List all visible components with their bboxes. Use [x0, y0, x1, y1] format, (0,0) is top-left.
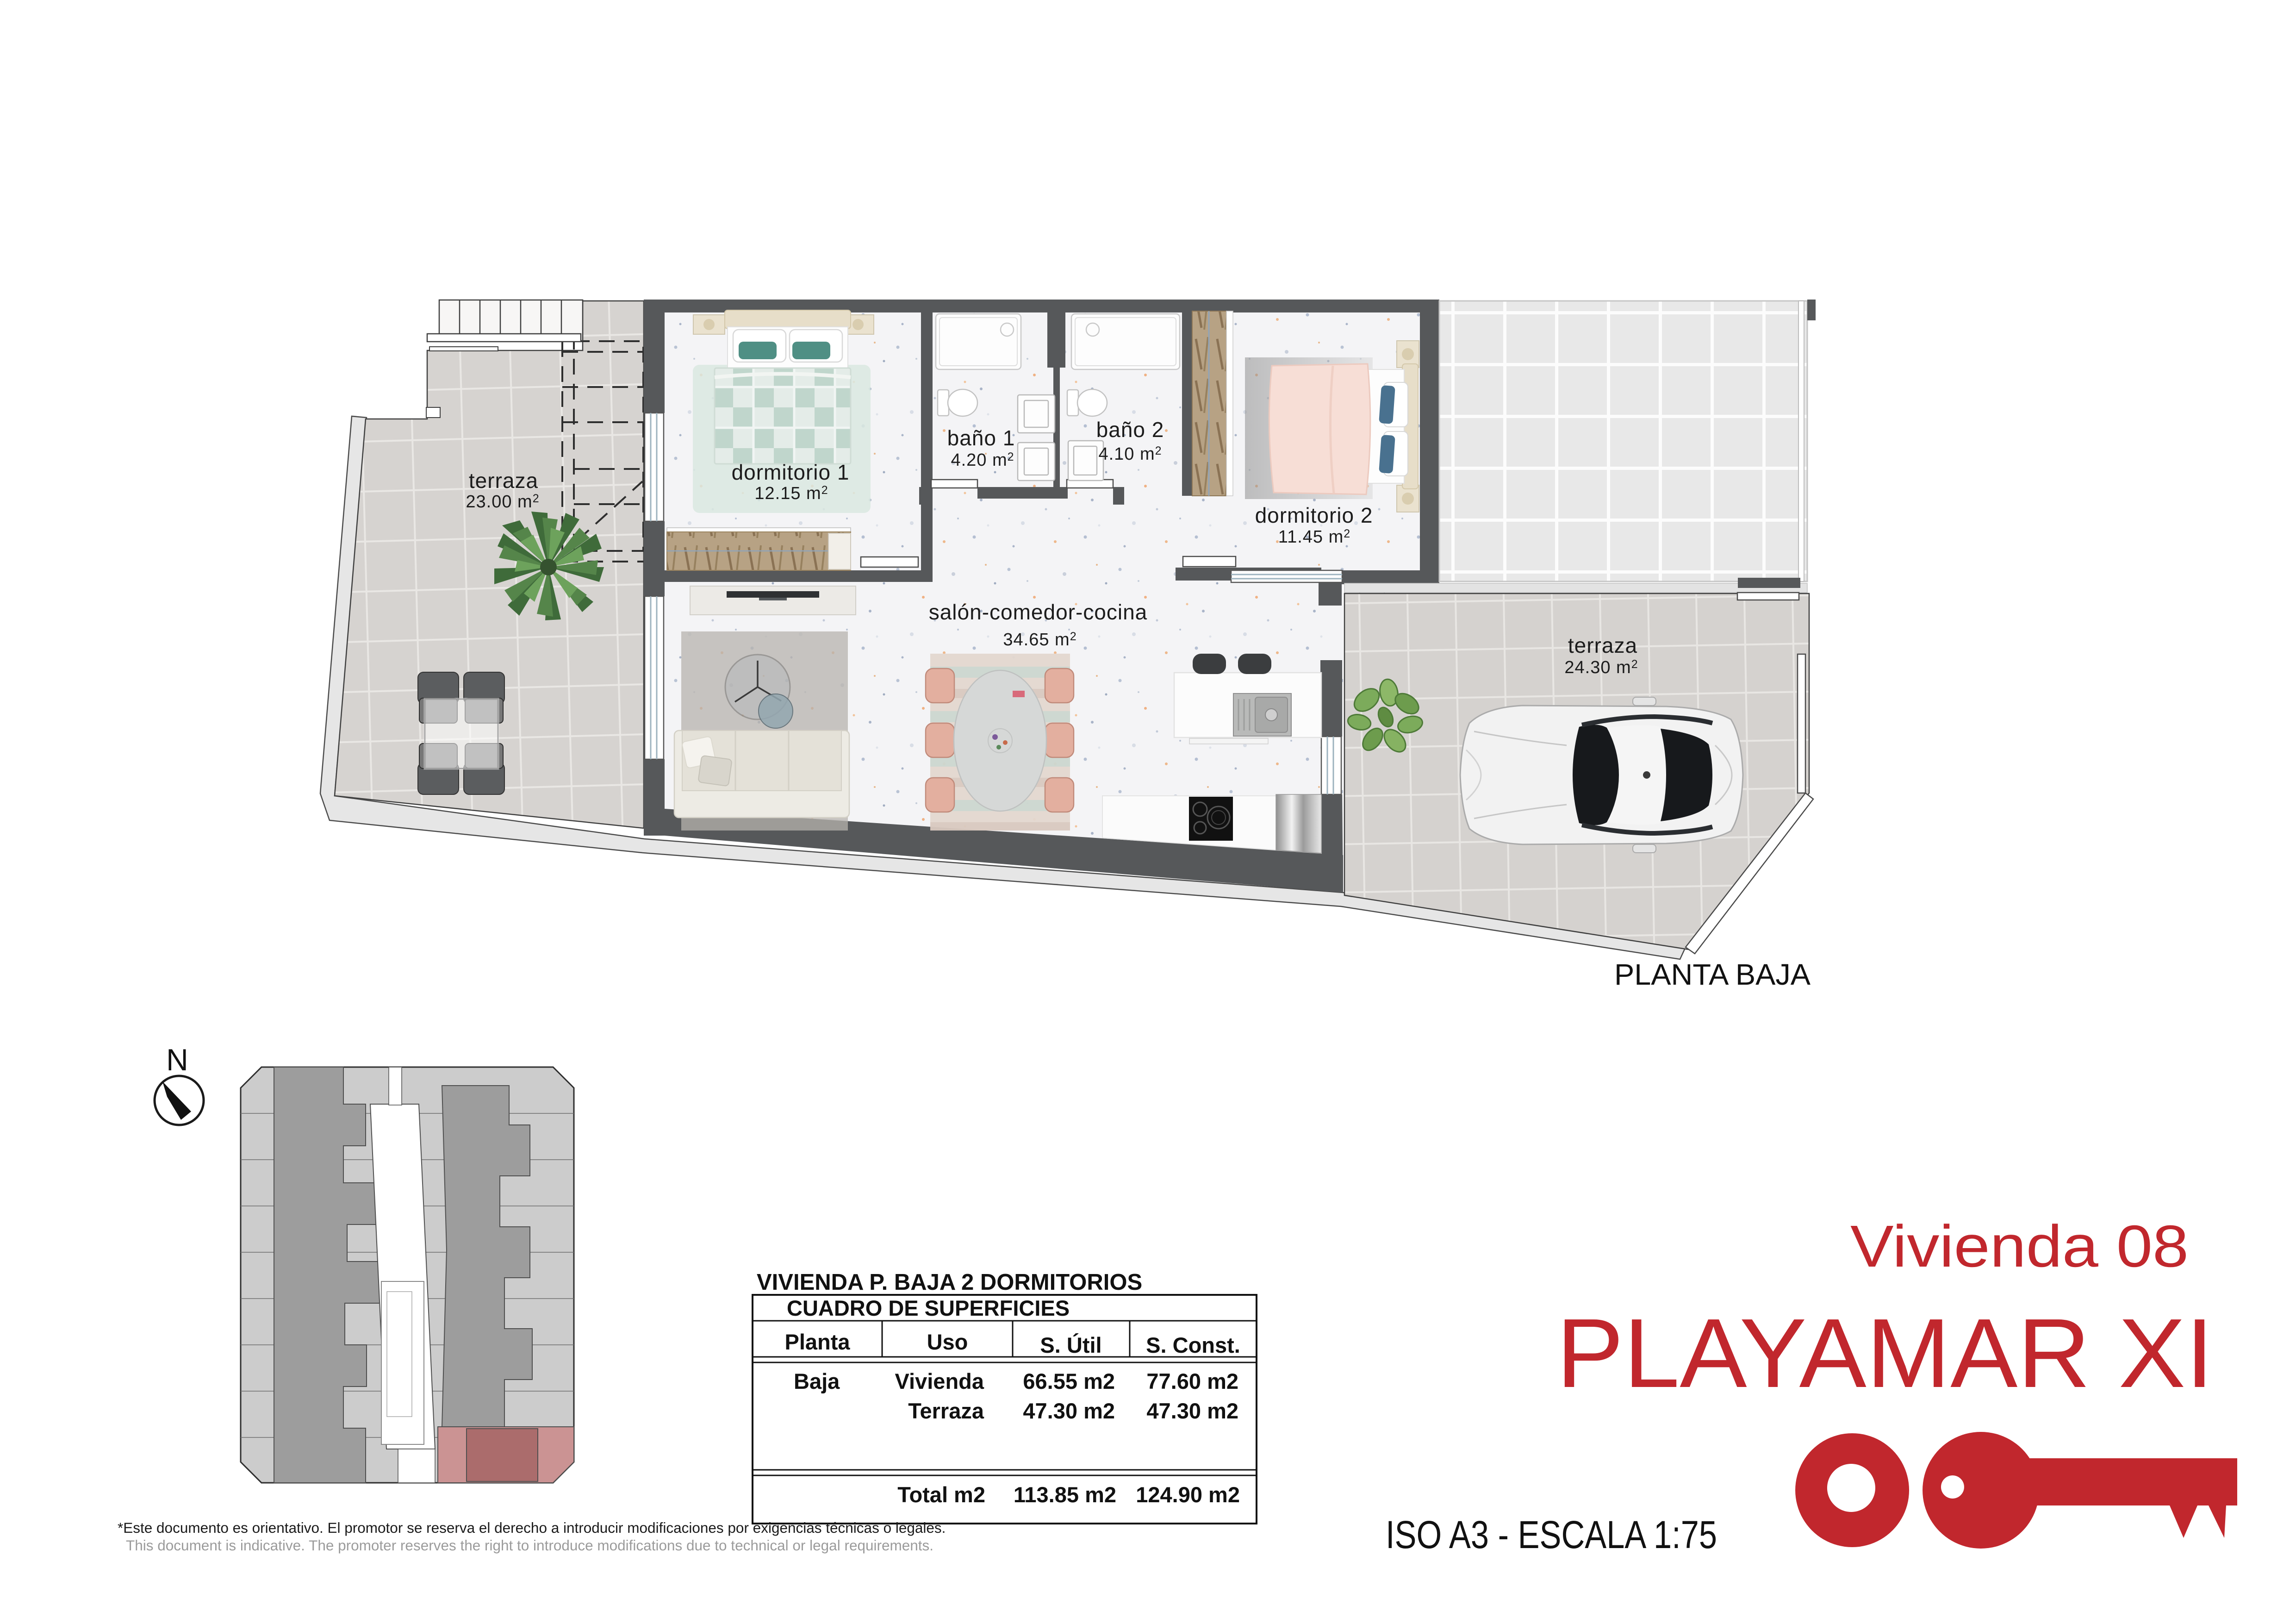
svg-text:PLANTA BAJA: PLANTA BAJA — [1614, 958, 1811, 991]
svg-text:34.65 m2: 34.65 m2 — [1003, 630, 1076, 650]
svg-text:24.30 m2: 24.30 m2 — [1564, 658, 1638, 677]
svg-text:S. Const.: S. Const. — [1146, 1333, 1240, 1357]
svg-text:12.15 m2: 12.15 m2 — [754, 484, 828, 503]
svg-text:Vivienda: Vivienda — [895, 1369, 984, 1393]
svg-text:124.90 m2: 124.90 m2 — [1136, 1482, 1240, 1507]
svg-text:4.10 m2: 4.10 m2 — [1098, 444, 1162, 464]
svg-text:dormitorio 1: dormitorio 1 — [732, 460, 850, 484]
svg-text:VIVIENDA P. BAJA 2 DORMITORIOS: VIVIENDA P. BAJA 2 DORMITORIOS — [757, 1270, 1142, 1295]
svg-text:baño 1: baño 1 — [947, 426, 1015, 450]
svg-text:dormitorio 2: dormitorio 2 — [1255, 503, 1373, 527]
svg-text:salón-comedor-cocina: salón-comedor-cocina — [929, 600, 1148, 624]
svg-text:113.85 m2: 113.85 m2 — [1014, 1482, 1116, 1507]
svg-text:*Este documento es orientativo: *Este documento es orientativo. El promo… — [118, 1519, 946, 1536]
svg-text:Uso: Uso — [927, 1330, 968, 1354]
svg-text:47.30 m2: 47.30 m2 — [1023, 1399, 1115, 1423]
svg-text:PLAYAMAR XI: PLAYAMAR XI — [1556, 1298, 2214, 1408]
svg-text:N: N — [166, 1043, 188, 1077]
svg-text:Terraza: Terraza — [908, 1399, 984, 1423]
svg-text:terraza: terraza — [469, 468, 538, 493]
svg-text:11.45 m2: 11.45 m2 — [1278, 527, 1350, 547]
svg-text:23.00 m2: 23.00 m2 — [466, 492, 539, 512]
svg-text:4.20 m2: 4.20 m2 — [951, 450, 1014, 470]
svg-text:CUADRO DE SUPERFICIES: CUADRO DE SUPERFICIES — [787, 1296, 1070, 1320]
svg-text:47.30 m2: 47.30 m2 — [1146, 1399, 1238, 1423]
svg-text:Planta: Planta — [784, 1330, 850, 1354]
svg-text:S. Útil: S. Útil — [1040, 1333, 1101, 1357]
svg-text:Total m2: Total m2 — [897, 1482, 985, 1507]
svg-text:ISO A3 - ESCALA 1:75: ISO A3 - ESCALA 1:75 — [1386, 1513, 1717, 1556]
svg-text:terraza: terraza — [1568, 633, 1637, 657]
svg-text:77.60 m2: 77.60 m2 — [1146, 1369, 1238, 1393]
svg-text:Vivienda 08: Vivienda 08 — [1850, 1213, 2189, 1280]
svg-text:Baja: Baja — [794, 1369, 840, 1393]
svg-text:66.55 m2: 66.55 m2 — [1023, 1369, 1115, 1393]
svg-text:This document is indicative. T: This document is indicative. The promote… — [126, 1537, 933, 1554]
svg-text:baño 2: baño 2 — [1096, 418, 1164, 442]
